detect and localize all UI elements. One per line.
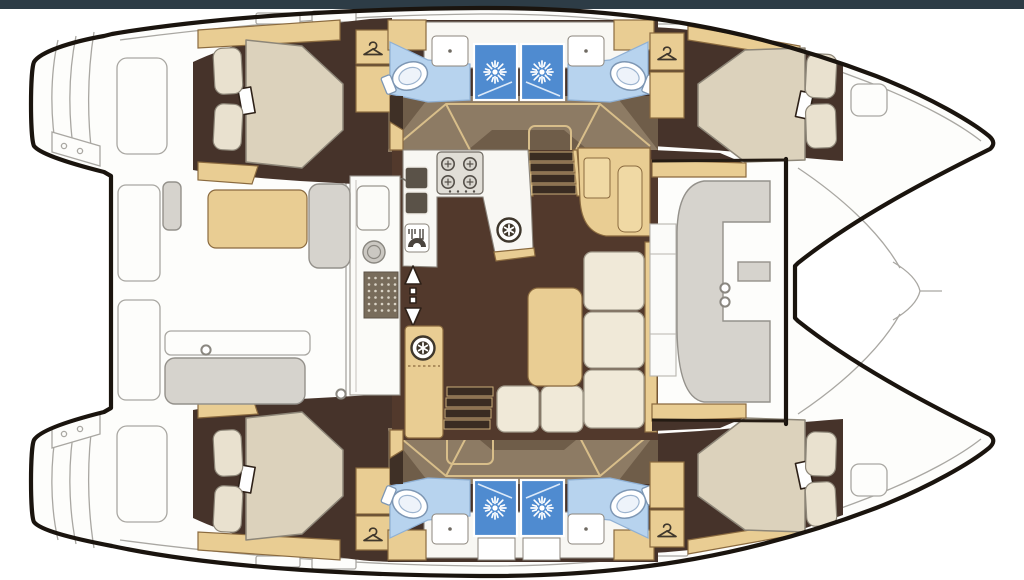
coachroof-front-starboard [652,420,786,421]
vent-rosette-icon [412,337,435,360]
forward-bench-tab [738,262,770,281]
vent-rosette-icon [498,219,521,242]
sofa-cushion [497,386,539,432]
shower-icon [484,497,506,519]
pillow [805,103,837,148]
salon-side-cabinet [405,326,443,438]
wardrobe [650,33,684,70]
salon-table [528,288,582,386]
cabinet [650,462,684,508]
screenshot-canvas [0,0,1024,580]
cleat-ring-icon [336,389,345,398]
catamaran-floor-plan-image [0,0,1024,580]
cockpit-locker [118,300,160,400]
bow-hatch-starboard [851,464,887,496]
pillow [213,429,243,476]
cockpit-table [208,190,307,248]
salon [350,96,658,484]
galley-sink [405,167,428,189]
burner-icon [442,158,454,170]
bench-seat [309,184,350,268]
shower-icon [484,61,506,83]
drain [448,527,452,531]
sofa-cushion [584,252,644,310]
stove [437,152,483,194]
wardrobe [356,516,390,550]
cleat-ring-icon [720,297,729,306]
pillow [213,103,243,150]
pillow [213,485,243,532]
salon-door [650,224,676,376]
pillow [805,431,837,476]
cleat-ring-icon [720,283,729,292]
nav-locker [584,158,610,198]
drain [584,49,588,53]
bench-seat [165,358,305,404]
drain [448,49,452,53]
step [652,404,746,421]
cleat-ring-icon [201,345,210,354]
wardrobe [356,30,390,64]
galley-sink [405,192,428,214]
bow-hatch-port [851,84,887,116]
pillow [213,47,243,94]
galley-aft-module [350,176,400,395]
drain [584,527,588,531]
burner-icon [442,176,454,188]
coachroof-front-port [652,160,786,161]
sofa-cushion [541,386,583,432]
step [652,160,746,177]
burner-icon [464,176,476,188]
washer [363,241,385,263]
cockpit-locker [118,185,160,281]
wardrobe [650,510,684,547]
cabinet [650,72,684,118]
sofa-cushion [584,312,644,368]
burner-icon [464,158,476,170]
locker [478,538,515,560]
pillow [805,481,837,527]
cabinet [198,162,258,184]
bench-seat [163,182,181,230]
nav-station [578,148,650,236]
nav-locker [618,166,642,232]
locker [523,538,560,560]
shower-icon [531,497,553,519]
shower-icon [531,61,553,83]
sofa-cushion [584,370,644,428]
